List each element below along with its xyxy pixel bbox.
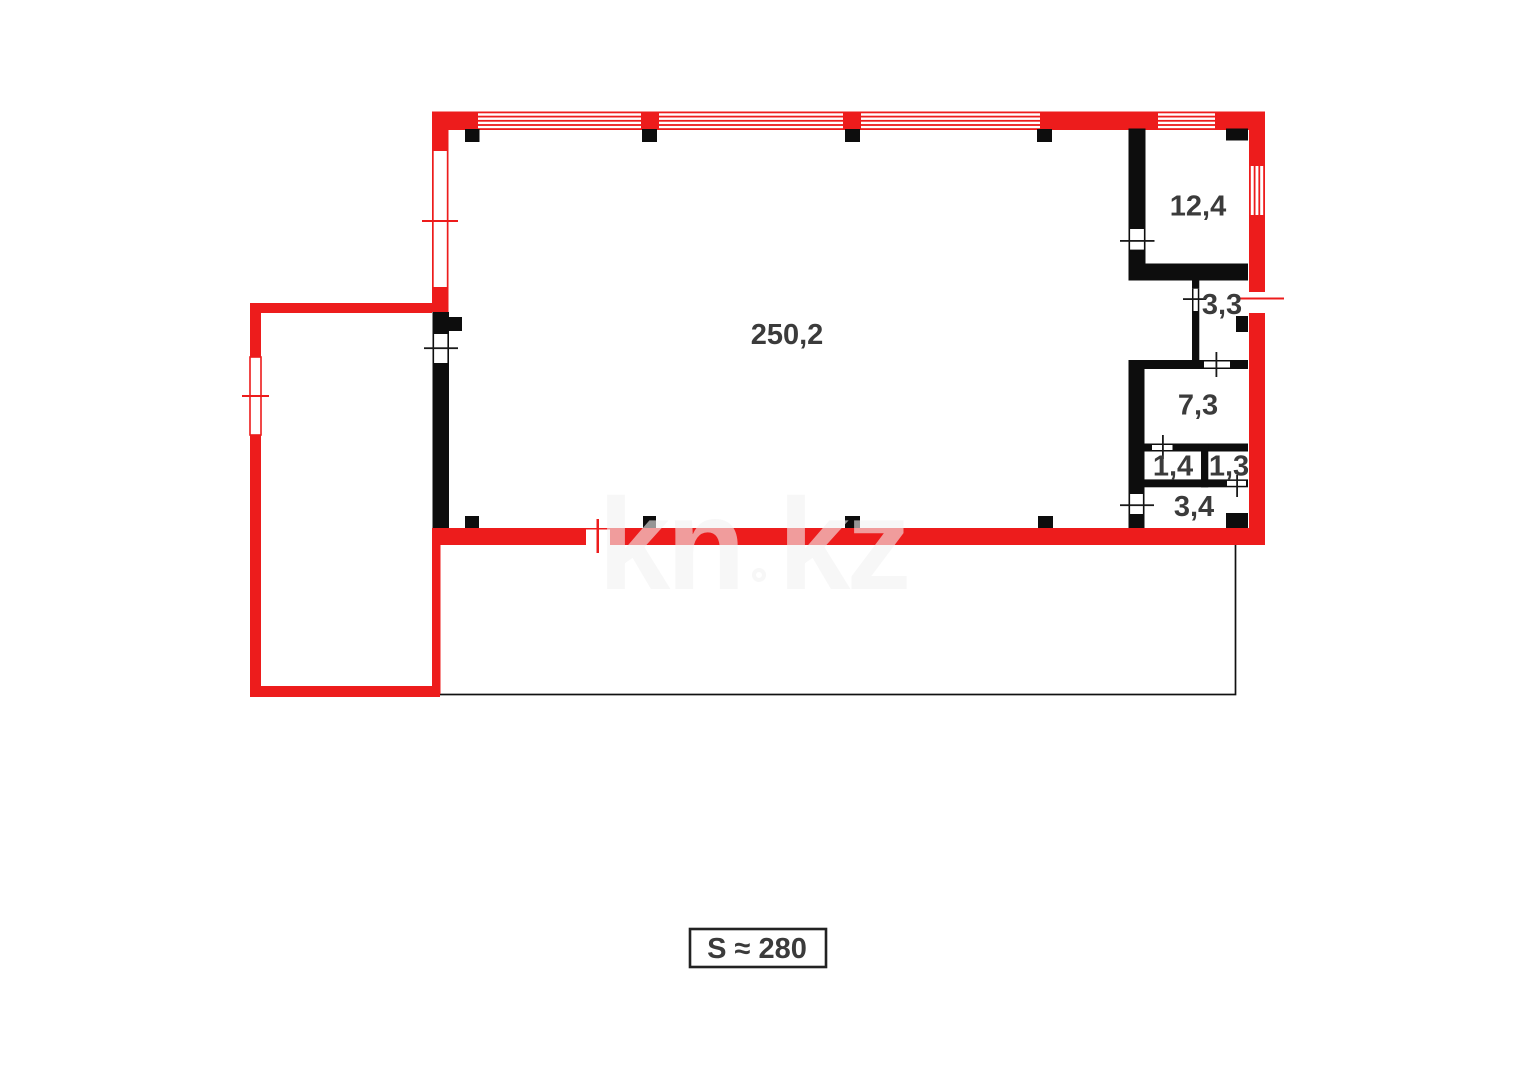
svg-text:7,3: 7,3 — [1178, 390, 1218, 422]
svg-text:kz: kz — [778, 471, 907, 617]
svg-text:S ≈ 280: S ≈ 280 — [707, 933, 807, 965]
svg-text:12,4: 12,4 — [1170, 191, 1226, 223]
svg-text:1,3: 1,3 — [1209, 451, 1249, 483]
svg-text:1,4: 1,4 — [1153, 451, 1193, 483]
svg-text:3,4: 3,4 — [1174, 491, 1214, 523]
svg-text:250,2: 250,2 — [751, 319, 824, 351]
svg-text:3,3: 3,3 — [1202, 289, 1242, 321]
svg-text:kn: kn — [598, 471, 742, 617]
